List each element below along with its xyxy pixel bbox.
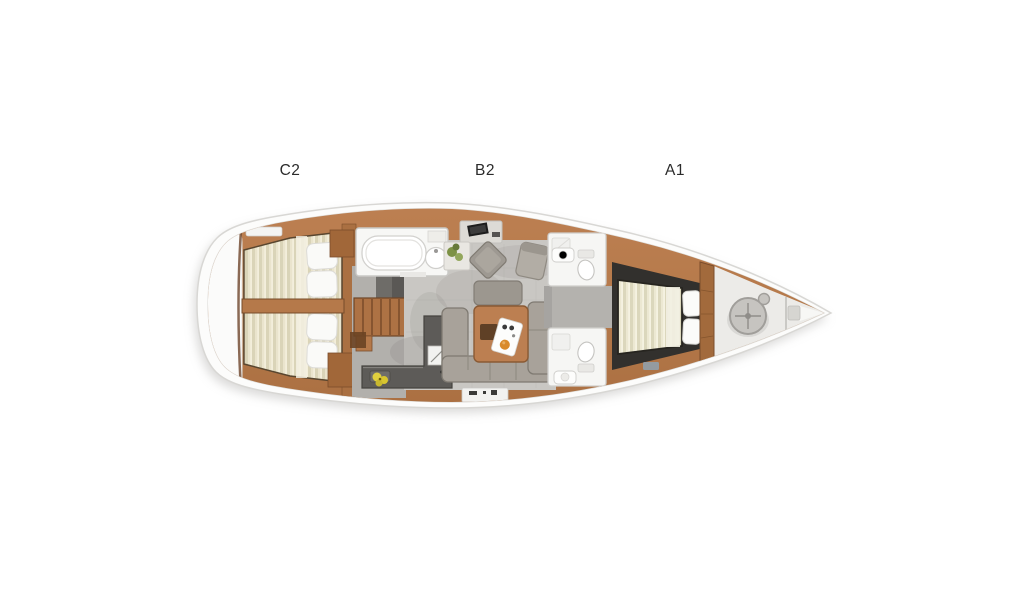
label-a1: A1 (665, 162, 685, 179)
head-port (548, 233, 606, 286)
galley-sink-unit (462, 388, 508, 402)
yacht-floor-plan-page: C2 B2 A1 (0, 0, 1024, 600)
bathtub (362, 236, 426, 270)
aft-berth-port-sheet (296, 236, 307, 302)
corridor-shadow (544, 286, 552, 328)
label-b2: B2 (475, 162, 495, 179)
wardrobe-port (330, 230, 354, 257)
faucet-icon (434, 249, 438, 253)
aft-berth-starboard-sheet (296, 312, 307, 378)
toilet-tank-starboard (578, 364, 594, 372)
aft-head (356, 228, 448, 277)
stool (350, 332, 366, 348)
forward-floor-hatch (643, 362, 659, 370)
capstan-icon (759, 294, 770, 305)
label-c2: C2 (280, 162, 301, 179)
aft-head-door (400, 272, 426, 277)
toilet-tank-port (578, 250, 594, 258)
saloon-bench (474, 281, 522, 305)
forward-berth-sheet (666, 287, 680, 347)
nav-gear-icon (492, 232, 500, 237)
wardrobe-starboard (328, 353, 355, 387)
shower-tray-starboard (552, 334, 570, 350)
yacht-floor-plan: C2 B2 A1 (0, 0, 1024, 600)
head-starboard (548, 328, 606, 386)
vanity-counter (428, 231, 446, 242)
corridor-floor (544, 286, 622, 328)
berth-divider (242, 299, 344, 313)
anchor-locker-box (788, 306, 800, 320)
